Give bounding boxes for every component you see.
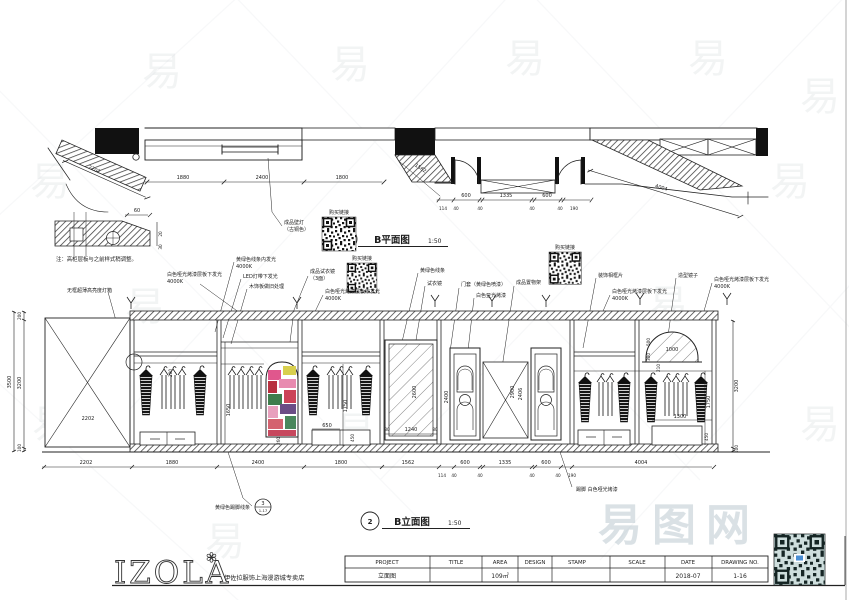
svg-text:4000K: 4000K [236, 264, 253, 270]
svg-text:2202: 2202 [80, 460, 93, 466]
purchase-link-label: 购买链接 [555, 244, 575, 251]
bench [312, 430, 370, 445]
dim-label: 190 [570, 206, 578, 211]
cad-canvas: 易 易 易 易 易 易 易 易 易 易 易 易 易 易图网 2202 1880 … [0, 0, 849, 600]
dim-label: 2406 [518, 388, 524, 401]
svg-text:黄绿色线条: 黄绿色线条 [420, 267, 445, 274]
dim-label: 450 [350, 434, 355, 442]
svg-text:成品置物架: 成品置物架 [516, 279, 541, 286]
hanger-icon [681, 374, 689, 416]
dim-label: 40 [557, 206, 563, 211]
dim-label: 1800 [336, 175, 349, 181]
dress-icon [193, 366, 207, 415]
fitting-mirror-glass [389, 344, 433, 436]
svg-text:易: 易 [142, 49, 182, 95]
val-project: 立面图 [378, 572, 396, 580]
plan-black-bulkhead [95, 128, 139, 154]
svg-text:3200: 3200 [17, 377, 23, 390]
dim-label: 20 [158, 231, 163, 237]
svg-text:3200: 3200 [734, 380, 740, 393]
dim-label: 1300 [674, 414, 687, 420]
ornate-door [450, 348, 480, 440]
annotation-labels: 成品壁灯 （古铜色） 成品试衣镜 （3面） 白色哑光烤漆层板下发光 4000K … [67, 219, 769, 302]
dim-label: 600 [461, 193, 471, 199]
watermark-layer: 易 易 易 易 易 易 易 易 易 易 易 易 易 易图网 [0, 0, 849, 600]
svg-text:1335: 1335 [499, 460, 512, 466]
dim-label: 80 [384, 427, 390, 432]
col-drawing-no: DRAWING NO. [721, 560, 759, 566]
dim-label: 260 [276, 437, 281, 445]
svg-text:600: 600 [460, 460, 470, 466]
val-date: 2018-07 [675, 573, 700, 580]
dim-label: 1750 [706, 396, 712, 409]
col-area: AREA [493, 560, 508, 566]
dress-icon [306, 366, 320, 415]
col-project: PROJECT [375, 560, 399, 566]
svg-text:4000K: 4000K [612, 296, 629, 302]
dim-label: 600 [542, 193, 552, 199]
col-stamp: STAMP [568, 560, 587, 566]
dress-icon [578, 373, 592, 422]
plan-black-column [756, 128, 768, 156]
dim-label: 40 [453, 206, 459, 211]
dim-label: 2202 [82, 416, 95, 422]
elevation: 2202 200 1650 [7, 311, 770, 515]
title-table: PROJECT TITLE AREA DESIGN STAMP SCALE DA… [345, 556, 768, 582]
svg-text:成品壁灯: 成品壁灯 [284, 219, 304, 226]
hanger-icon [327, 367, 335, 409]
svg-text:2400: 2400 [252, 460, 265, 466]
hanger-icon [255, 367, 263, 409]
dress-icon [644, 373, 658, 422]
svg-text:LED灯带下发光: LED灯带下发光 [243, 273, 278, 280]
detail-section: 60 20 30 注：高柜层板与之前样式稍调整。 [55, 208, 163, 263]
svg-text:114: 114 [438, 473, 446, 478]
downlight-symbol [133, 154, 139, 160]
leader-lines [108, 158, 712, 368]
svg-text:易: 易 [800, 74, 840, 120]
svg-text:门套（黄绿色喷漆）: 门套（黄绿色喷漆） [461, 281, 506, 288]
door-swing [455, 160, 479, 184]
hanger-icon [672, 374, 680, 416]
svg-text:40: 40 [451, 473, 457, 478]
dim-label: 300 [646, 353, 651, 361]
svg-text:200: 200 [17, 312, 22, 320]
svg-text:黄绿色线条内发光: 黄绿色线条内发光 [236, 256, 276, 263]
hanger-icon [606, 374, 614, 416]
hanger-icon [160, 367, 168, 409]
svg-text:40: 40 [555, 473, 561, 478]
svg-text:装饰相框片: 装饰相框片 [598, 272, 623, 279]
svg-text:试衣镜: 试衣镜 [427, 280, 442, 287]
left-dimension-stack: 3500 200 3200 100 [7, 311, 26, 452]
bottom-dimension-line: 2202 1880 2400 1800 1562 600 1335 600 40… [42, 460, 716, 478]
drawing-sheet: 易 易 易 易 易 易 易 易 易 易 易 易 易 易图网 2202 1880 … [0, 0, 849, 600]
hanger-icon [237, 367, 245, 409]
svg-text:易: 易 [330, 42, 370, 88]
dim-label: 60 [134, 208, 140, 214]
svg-text:40: 40 [477, 473, 483, 478]
dim-label: 40 [529, 206, 535, 211]
elevation-title-text: B立面图 [394, 516, 430, 528]
svg-text:踢脚 白色哑光烤漆: 踢脚 白色哑光烤漆 [576, 486, 618, 493]
hanger-icon [228, 367, 236, 409]
val-area: 109㎡ [491, 572, 508, 580]
col-scale: SCALE [628, 560, 646, 566]
dim-label: 2900 [510, 386, 516, 399]
floor-plan: 2202 1880 2400 1800 1562 600 1335 600 11… [48, 128, 768, 219]
svg-text:无框超薄高亮度灯箱: 无框超薄高亮度灯箱 [67, 287, 112, 294]
svg-text:4000K: 4000K [325, 296, 342, 302]
col-title: TITLE [448, 560, 464, 566]
dim-label: 30 [158, 244, 163, 250]
svg-text:190: 190 [568, 473, 576, 478]
svg-text:易: 易 [800, 402, 840, 448]
svg-text:白色哑光烤漆层板下发光: 白色哑光烤漆层板下发光 [325, 288, 380, 295]
svg-text:易: 易 [770, 159, 810, 205]
purchase-link-label: 购买链接 [329, 209, 349, 216]
svg-text:1880: 1880 [166, 460, 179, 466]
titleblock-qr-code [774, 534, 825, 585]
svg-text:白色亚光烤漆: 白色亚光烤漆 [476, 292, 506, 299]
dress-icon [617, 373, 631, 422]
plan-title-text: B平面图 [374, 235, 410, 246]
hanger-icon [663, 374, 671, 416]
dim-label: 1650 [226, 404, 232, 417]
low-cabinet [140, 432, 195, 445]
decor-collage-mirror [266, 362, 298, 437]
dim-label: 1335 [500, 193, 513, 199]
dim-label: 2400 [444, 391, 450, 404]
hanger-icon [597, 374, 605, 416]
ceiling-band [130, 311, 718, 320]
dim-label: 650 [322, 423, 332, 429]
right-dimension-stack: 3200 100 [731, 320, 740, 453]
val-drawing-no: 1-16 [733, 573, 747, 580]
watermark-site-logo: 易图网 [598, 500, 760, 551]
svg-text:100: 100 [734, 445, 739, 453]
svg-text:（古铜色）: （古铜色） [284, 226, 309, 233]
svg-text:易: 易 [30, 159, 70, 205]
elevation-bubble-number: 2 [368, 518, 373, 526]
ornate-door [531, 348, 561, 440]
dress-icon [139, 366, 153, 415]
svg-text:白色哑光烤漆层板下发光: 白色哑光烤漆层板下发光 [612, 288, 667, 295]
svg-text:白色哑光烤漆层板下发光: 白色哑光烤漆层板下发光 [714, 276, 769, 283]
hanger-icon [169, 367, 177, 409]
ceiling-light-symbols [127, 293, 731, 309]
door-swing [557, 160, 581, 184]
detail-note: 注：高柜层板与之前样式稍调整。 [56, 255, 137, 263]
plan-scale: 1:50 [428, 238, 442, 245]
svg-text:易: 易 [505, 36, 545, 82]
purchase-link-label: 购买链接 [352, 255, 372, 262]
dress-icon [359, 366, 373, 415]
svg-text:4000K: 4000K [714, 284, 731, 290]
plan-black-bulkhead [395, 128, 435, 155]
svg-text:木饰板做旧处理: 木饰板做旧处理 [249, 283, 284, 290]
svg-text:成品试衣镜: 成品试衣镜 [310, 268, 335, 275]
svg-text:600: 600 [541, 460, 551, 466]
dim-label: 80 [432, 427, 438, 432]
svg-text:黄绿色踢脚线条: 黄绿色踢脚线条 [215, 504, 250, 511]
logo-flower-icon: ✽ [206, 551, 217, 566]
linear-light-fixture [222, 147, 278, 152]
svg-text:1-17: 1-17 [259, 508, 268, 513]
svg-text:3500: 3500 [7, 376, 13, 389]
dim-label: 1880 [177, 175, 190, 181]
dim-label: 114 [439, 206, 447, 211]
qr-code [549, 252, 581, 284]
hanger-icon [246, 367, 254, 409]
qr-code [322, 217, 356, 251]
svg-text:1562: 1562 [402, 460, 415, 466]
svg-text:（3面）: （3面） [310, 276, 328, 282]
col-date: DATE [681, 560, 696, 566]
svg-text:100: 100 [17, 444, 22, 452]
svg-text:造型镜子: 造型镜子 [678, 272, 698, 279]
svg-text:白色哑光烤漆层板下发光: 白色哑光烤漆层板下发光 [167, 271, 222, 278]
svg-text:3: 3 [261, 501, 264, 507]
dim-label: 1750 [343, 400, 349, 413]
svg-text:1800: 1800 [335, 460, 348, 466]
dim-label: 40 [477, 206, 483, 211]
svg-text:易: 易 [688, 36, 728, 82]
svg-text:4000K: 4000K [167, 279, 184, 285]
hanger-icon [178, 367, 186, 409]
dim-label: 2600 [412, 386, 418, 399]
dim-label: 500 [646, 338, 651, 346]
elevation-scale: 1:50 [448, 520, 462, 527]
dim-label: 2400 [256, 175, 269, 181]
col-design: DESIGN [525, 560, 546, 566]
dim-label: 1000 [666, 347, 679, 353]
dim-label: 4004 [654, 183, 668, 192]
brand-subtitle: 伊佐拉服饰上海漫游城专卖店 [224, 574, 304, 582]
bench [652, 426, 702, 445]
dim-label: 1240 [405, 427, 418, 433]
svg-text:4004: 4004 [635, 460, 648, 466]
svg-text:40: 40 [529, 473, 535, 478]
